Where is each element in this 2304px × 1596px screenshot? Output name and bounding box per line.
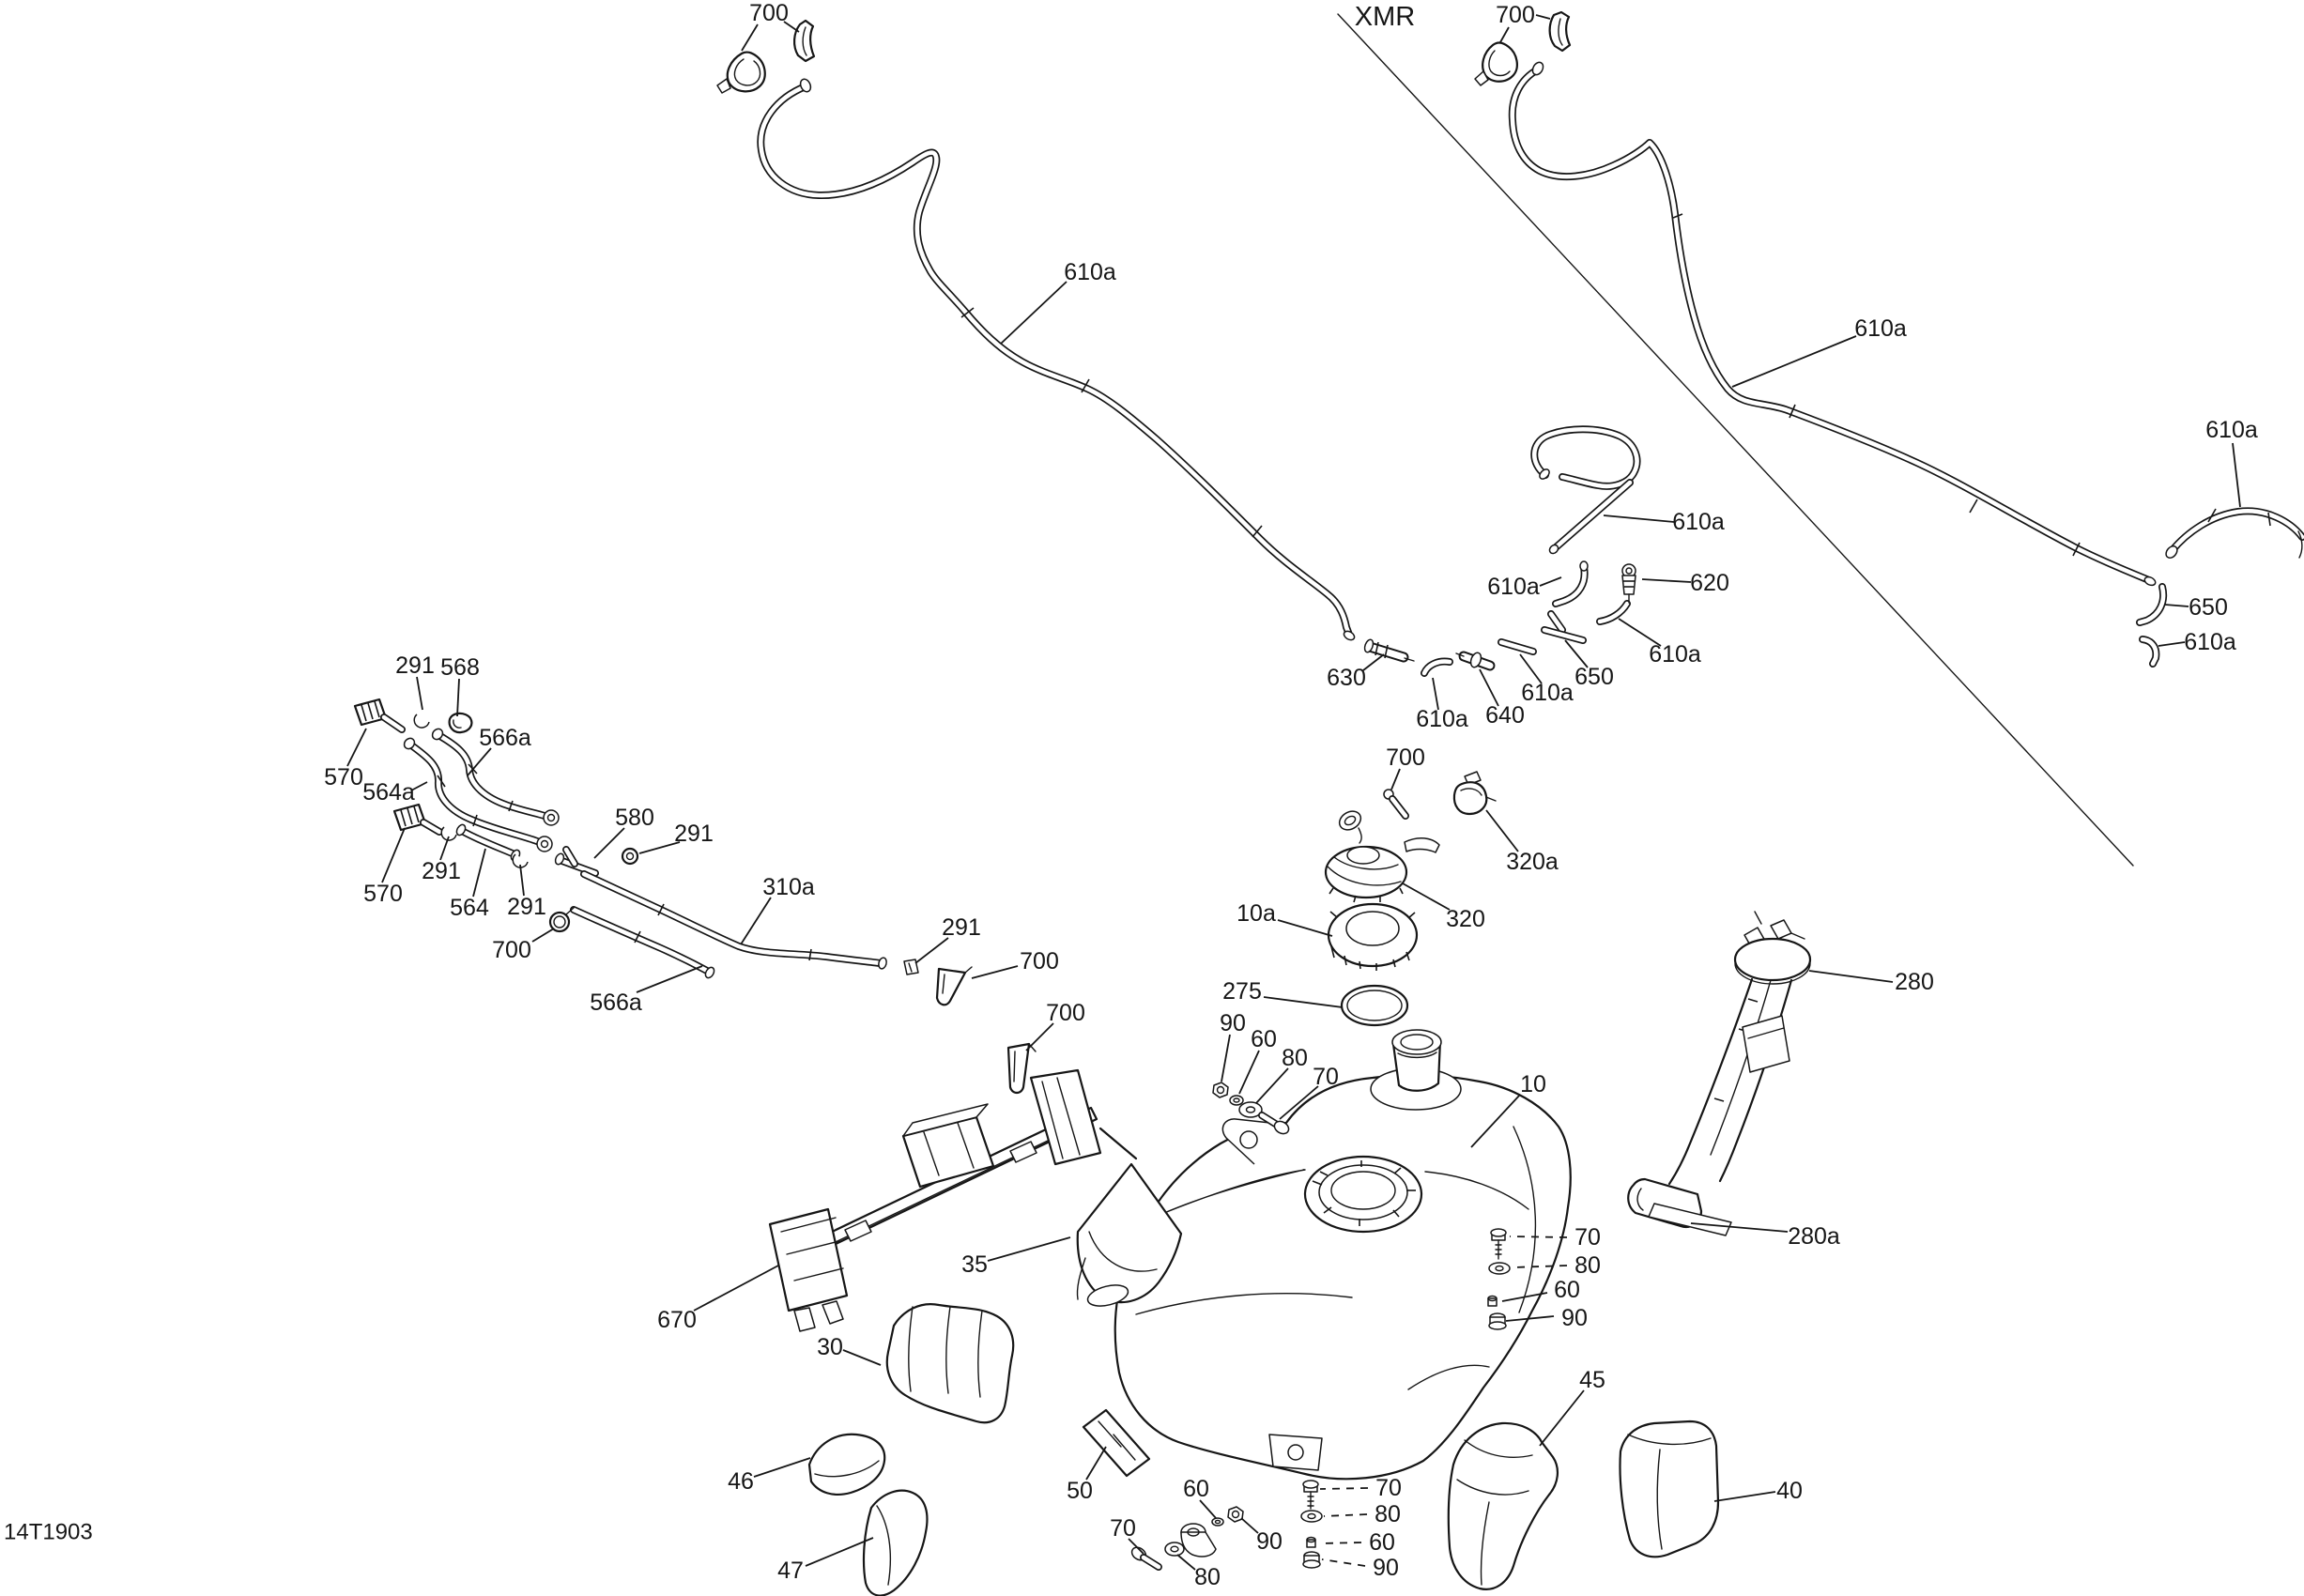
drawing-pin-clip-700: [1384, 790, 1405, 816]
leader-line-291-clamp-564: [520, 865, 524, 896]
part-callout-280-fuel-pump: 280: [1895, 969, 1934, 995]
part-callout-80-washer-left: 80: [1282, 1045, 1308, 1071]
part-callout-640-connector: 640: [1485, 702, 1525, 729]
part-callout-10a-ring: 10a: [1236, 900, 1276, 927]
part-callout-291-clamp-mid: 291: [422, 858, 461, 884]
drawing-vent-hose-610a-left: [760, 78, 1356, 642]
leader-line-90-nut-br: [1322, 1559, 1365, 1566]
part-callout-564a-hose: 564a: [362, 779, 415, 806]
drawing-clip-700-b: [1008, 1044, 1036, 1093]
part-callout-291-clamp-end: 291: [942, 914, 981, 941]
part-callout-610a-loop-hose: 610a: [1672, 509, 1725, 535]
leader-line-570-fitting-upper: [347, 729, 366, 766]
leader-line-50-strip: [1086, 1447, 1106, 1480]
part-callout-670-bracket: 670: [657, 1307, 697, 1333]
drawing-breather-320a: [1454, 772, 1496, 814]
part-callout-700-clip-a: 700: [1020, 948, 1059, 974]
leader-line-291-clamp-mid: [440, 836, 449, 860]
part-callout-564-hose: 564: [450, 895, 489, 921]
part-callout-70-bolt-tank-right: 70: [1574, 1224, 1601, 1251]
drawing-fuel-cap-320: [1326, 807, 1439, 902]
leader-line-700-pin-clip: [1391, 769, 1400, 790]
leader-line-640-connector: [1480, 669, 1498, 706]
drawing-hose-310a: [584, 874, 887, 970]
part-callout-610a-elbow-right: 610a: [2184, 629, 2236, 655]
part-callout-568-clip: 568: [440, 654, 480, 681]
part-callout-320-cap: 320: [1446, 906, 1485, 932]
leader-line-700-clips-topright: [1536, 15, 1550, 19]
leader-line-80-washer-left: [1256, 1068, 1288, 1103]
part-callout-610a-hose-arc-right: 610a: [2205, 417, 2258, 443]
part-callout-70-bolt-left: 70: [1313, 1064, 1339, 1090]
drawing-connector-640: [1456, 652, 1490, 668]
leader-line-610a-loop-hose: [1604, 515, 1674, 522]
part-callout-30-guard: 30: [817, 1334, 843, 1360]
drawing-fuel-tank-10: [1115, 1030, 1571, 1479]
drawing-guard-45: [1449, 1423, 1558, 1589]
part-callout-45-guard: 45: [1579, 1367, 1605, 1393]
part-callout-570-fitting-upper: 570: [324, 764, 363, 790]
part-callout-70-bolt-bottom: 70: [1110, 1515, 1136, 1542]
drawing-fuel-pump-280: [1628, 912, 1810, 1235]
drawing-guard-30: [887, 1304, 1013, 1422]
leader-line-70-bolt-br: [1320, 1488, 1368, 1489]
leader-line-40-guard: [1714, 1492, 1775, 1501]
part-callout-610a-elbow-c: 610a: [1649, 641, 1701, 668]
part-callout-320a-breather: 320a: [1506, 849, 1559, 875]
leader-line-650-elbow-right: [2165, 605, 2189, 606]
leader-line-568-clip: [457, 679, 459, 716]
leader-line-45-guard: [1540, 1390, 1584, 1446]
leader-line-700-ring-clamp: [532, 928, 554, 942]
drawing-hose-564a: [402, 736, 552, 852]
part-callout-90-nut-br: 90: [1373, 1555, 1399, 1581]
part-callout-700-clip-b: 700: [1046, 1000, 1085, 1026]
part-callout-80-washer-br: 80: [1375, 1501, 1401, 1527]
part-callout-566a-hose: 566a: [479, 725, 531, 751]
part-callout-50-strip: 50: [1067, 1478, 1093, 1504]
leader-line-610a-elbow-a: [1433, 678, 1438, 710]
part-callout-90-nut-bottom: 90: [1256, 1528, 1283, 1555]
drawing-fasteners-bottom-right: [1301, 1481, 1322, 1568]
drawing-clip-568: [450, 714, 472, 732]
drawing-clip-700-a: [937, 967, 972, 1005]
variant-divider-line: [1338, 14, 2133, 866]
part-callout-291-ring: 291: [674, 821, 714, 847]
part-callout-570-fitting-lower: 570: [363, 881, 403, 907]
drawing-fasteners-bottom-centre: [1129, 1507, 1243, 1567]
leader-line-275-gasket: [1264, 997, 1343, 1007]
leader-line-80-washer-bottom: [1177, 1555, 1195, 1570]
drawing-elbow-610a-top: [1556, 561, 1588, 604]
drawing-tee-650: [1544, 614, 1583, 640]
leader-line-610a-hose-left: [1001, 282, 1067, 344]
leader-line-320-cap: [1403, 883, 1450, 910]
leader-line-610a-elbow-right: [2158, 642, 2185, 646]
leader-line-610a-hose-arc-right: [2233, 443, 2240, 507]
drawing-elbow-610a-a: [1424, 662, 1450, 673]
leader-line-700-clips-topright: [1500, 27, 1509, 42]
drawing-valve-620: [1622, 564, 1636, 603]
part-callout-90-nut-tank-right: 90: [1561, 1305, 1588, 1331]
part-callout-566a-hose-lower: 566a: [590, 990, 642, 1016]
part-callout-70-bolt-br: 70: [1375, 1475, 1402, 1501]
drawing-arc-hose-610a-right: [2164, 509, 2302, 560]
part-callout-291-clamp-564: 291: [507, 894, 546, 920]
drawing-loop-hose-610a: [1534, 429, 1636, 555]
drawing-fitting-570-lower: [394, 805, 439, 832]
leader-line-60-washer-bottom: [1200, 1500, 1216, 1518]
drawing-support-bracket-670: [770, 1070, 1136, 1331]
part-callout-630-valve: 630: [1327, 665, 1366, 691]
drawing-ring-clamp-700: [550, 908, 574, 931]
drawing-ring-291: [622, 849, 637, 864]
leader-line-630-valve: [1363, 654, 1384, 670]
drawing-elbow-650-right: [2140, 587, 2163, 622]
drawing-valve-630: [1363, 638, 1414, 661]
leader-line-564-hose: [473, 849, 485, 897]
leader-line-291-clamp-top: [417, 677, 422, 710]
part-callout-610a-hose-xmr: 610a: [1854, 315, 1907, 342]
part-callout-700-pin-clip: 700: [1386, 744, 1425, 771]
leader-line-610a-hose-xmr: [1732, 336, 1856, 387]
part-callout-60-nut-br: 60: [1369, 1529, 1395, 1556]
part-callout-80-washer-tank-right: 80: [1574, 1252, 1601, 1279]
part-callout-620-valve: 620: [1690, 570, 1729, 596]
leader-line-610a-elbow-top: [1540, 577, 1561, 586]
drawing-vent-hose-610a-xmr: [1513, 60, 2157, 587]
part-callout-10-fuel-tank: 10: [1520, 1071, 1546, 1097]
leader-line-280-fuel-pump: [1809, 971, 1893, 982]
part-callout-700-clips-topleft: 700: [749, 0, 789, 26]
leader-line-60-washer-left: [1239, 1051, 1259, 1094]
leader-line-291-clamp-end: [915, 938, 948, 963]
variant-label: XMR: [1355, 2, 1415, 32]
part-callout-275-gasket: 275: [1222, 978, 1262, 1005]
leader-line-580-tee: [594, 828, 624, 858]
drawing-elbow-610a-right: [2143, 639, 2156, 664]
leader-line-700-clips-topleft: [742, 24, 758, 51]
drawing-fitting-570-upper: [355, 699, 402, 729]
leader-line-620-valve: [1642, 579, 1691, 582]
drawing-retainer-ring-10a: [1329, 904, 1417, 971]
drawing-hose-610a-b: [1501, 642, 1533, 652]
leader-line-80-washer-br: [1324, 1514, 1367, 1516]
part-callout-90-nut-left: 90: [1220, 1010, 1246, 1036]
drawing-elbow-610a-c: [1600, 604, 1627, 622]
drawing-guard-46: [809, 1435, 884, 1495]
drawing-guard-47: [864, 1491, 927, 1596]
drawing-tee-580: [554, 850, 595, 873]
part-callout-60-nut-tank-right: 60: [1554, 1277, 1580, 1303]
leader-line-310a-hose: [741, 898, 771, 944]
part-callout-610a-elbow-a: 610a: [1416, 706, 1468, 732]
part-callout-700-ring-clamp: 700: [492, 937, 531, 963]
part-callout-60-washer-left: 60: [1251, 1026, 1277, 1052]
part-callout-310a-hose: 310a: [762, 874, 815, 900]
leader-line-700-clip-a: [972, 966, 1018, 978]
leader-line-700-clip-b: [1026, 1023, 1053, 1051]
sheet-code-label: 14T1903: [4, 1520, 93, 1545]
part-callout-610a-elbow-top: 610a: [1487, 574, 1540, 600]
leader-line-570-fitting-lower: [382, 828, 405, 882]
part-callout-40-guard: 40: [1776, 1478, 1803, 1504]
leader-line-46-guard: [754, 1458, 810, 1477]
part-callout-46-guard: 46: [728, 1468, 754, 1495]
parts-diagram-sheet: XMR 14T1903 700700610a610a610a650610a610…: [0, 0, 2304, 1596]
diagram-canvas: XMR 14T1903 700700610a610a610a650610a610…: [0, 0, 2304, 1596]
part-callout-35-deflector: 35: [961, 1251, 988, 1278]
leader-line-90-nut-left: [1221, 1035, 1230, 1082]
part-callout-280a-bracket: 280a: [1788, 1223, 1840, 1250]
drawing-guard-40: [1620, 1421, 1718, 1557]
part-callout-47-guard: 47: [777, 1558, 804, 1584]
leader-line-60-nut-br: [1320, 1542, 1361, 1543]
leader-line-35-deflector: [988, 1237, 1070, 1261]
part-callout-80-washer-bottom: 80: [1194, 1564, 1221, 1590]
part-callout-650-elbow-right: 650: [2189, 594, 2228, 621]
part-callout-610a-hose-left: 610a: [1064, 259, 1116, 285]
part-callout-580-tee: 580: [615, 805, 654, 831]
part-callout-291-clamp-top: 291: [395, 652, 435, 679]
hose-clips-top-left: [717, 21, 814, 93]
drawing-strip-50: [1083, 1410, 1149, 1476]
part-callout-60-washer-bottom: 60: [1183, 1476, 1209, 1502]
leader-line-320a-breather: [1486, 810, 1518, 852]
leader-line-30-guard: [843, 1350, 881, 1365]
part-callout-610a-hose-b: 610a: [1521, 680, 1574, 706]
drawing-gasket-275: [1342, 986, 1407, 1025]
leader-line-10a-ring: [1278, 920, 1332, 936]
drawing-clamp-291-top: [414, 714, 429, 728]
leader-line-670-bracket: [694, 1266, 778, 1311]
leader-line-566a-hose-lower: [637, 966, 702, 992]
part-callout-700-clips-topright: 700: [1496, 2, 1535, 28]
part-callout-650-tee: 650: [1574, 664, 1614, 690]
